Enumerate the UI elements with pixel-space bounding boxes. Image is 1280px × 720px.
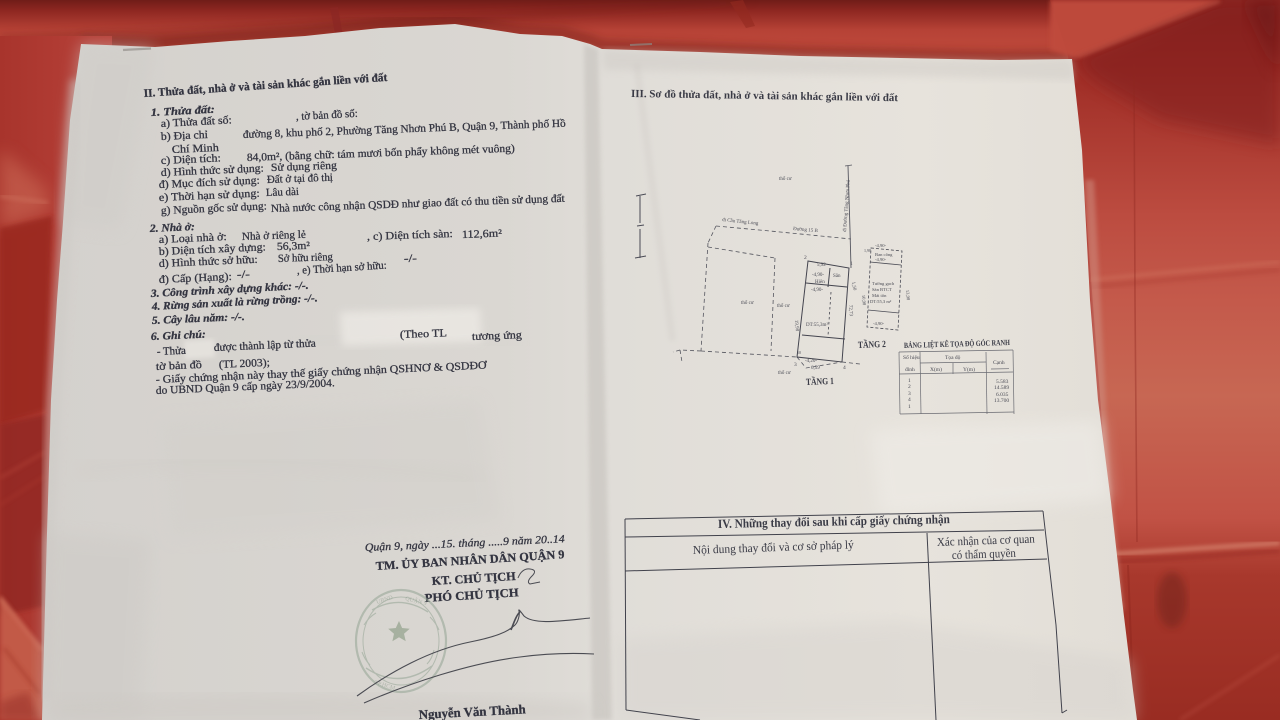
svg-text:Mái tôn: Mái tôn <box>872 293 887 298</box>
svg-text:Hiên: Hiên <box>815 280 825 285</box>
svg-text:4: 4 <box>908 397 911 403</box>
svg-text:Tọa độ: Tọa độ <box>945 355 961 361</box>
svg-text:Y(m): Y(m) <box>963 366 975 373</box>
svg-text:3: 3 <box>794 362 797 368</box>
svg-text:14.589: 14.589 <box>994 385 1009 391</box>
svg-text:6. Ghi chú:: 6. Ghi chú: <box>151 329 206 343</box>
svg-text:- Thửa: - Thửa <box>157 345 187 358</box>
svg-text:19,98: 19,98 <box>793 320 799 332</box>
svg-text:1: 1 <box>850 261 853 267</box>
svg-text:56,3m²: 56,3m² <box>277 240 311 253</box>
svg-text:Sàn BTCT: Sàn BTCT <box>872 287 892 292</box>
svg-text:72,73: 72,73 <box>847 305 853 317</box>
svg-text:DT:55,3m²: DT:55,3m² <box>806 322 828 328</box>
svg-text:-/-: -/- <box>237 269 251 281</box>
svg-text:Tường gạch: Tường gạch <box>872 281 895 286</box>
svg-text:50: 50 <box>797 350 801 355</box>
svg-text:đỉnh: đỉnh <box>905 367 915 373</box>
svg-text:tương ứng: tương ứng <box>472 329 523 343</box>
svg-text:-4,20-: -4,20- <box>805 359 817 364</box>
svg-text:-/-: -/- <box>404 253 418 265</box>
svg-text:Cạnh: Cạnh <box>993 360 1005 366</box>
svg-text:Lâu dài: Lâu dài <box>266 186 299 199</box>
svg-text:13.700: 13.700 <box>994 398 1009 404</box>
svg-text:thổ cư: thổ cư <box>778 370 791 376</box>
svg-text:-4,90-: -4,90- <box>811 288 823 293</box>
svg-text:4: 4 <box>843 365 846 371</box>
svg-text:X(m): X(m) <box>930 366 942 373</box>
svg-text:-4,90-: -4,90- <box>812 273 824 278</box>
svg-text:có thẩm quyền: có thẩm quyền <box>952 546 1016 562</box>
svg-text:Đất ở tại đô thị: Đất ở tại đô thị <box>267 172 333 186</box>
svg-text:b) Địa chỉ: b) Địa chỉ <box>161 129 208 143</box>
svg-text:112,6m²: 112,6m² <box>462 228 503 241</box>
svg-text:2: 2 <box>908 384 911 390</box>
svg-text:(Theo TL: (Theo TL <box>400 327 448 341</box>
svg-text:thổ cư: thổ cư <box>779 176 792 182</box>
svg-text:Sân: Sân <box>833 274 841 279</box>
svg-text:thổ cư: thổ cư <box>741 300 754 306</box>
svg-text:6,59: 6,59 <box>811 366 820 371</box>
svg-text:Số hiệu: Số hiệu <box>903 354 920 361</box>
svg-text:tờ bản đồ: tờ bản đồ <box>156 359 203 373</box>
svg-text:2: 2 <box>804 255 807 261</box>
svg-text:thổ cư: thổ cư <box>777 303 790 309</box>
svg-text:5,92: 5,92 <box>817 263 826 268</box>
svg-text:1: 1 <box>908 404 911 410</box>
